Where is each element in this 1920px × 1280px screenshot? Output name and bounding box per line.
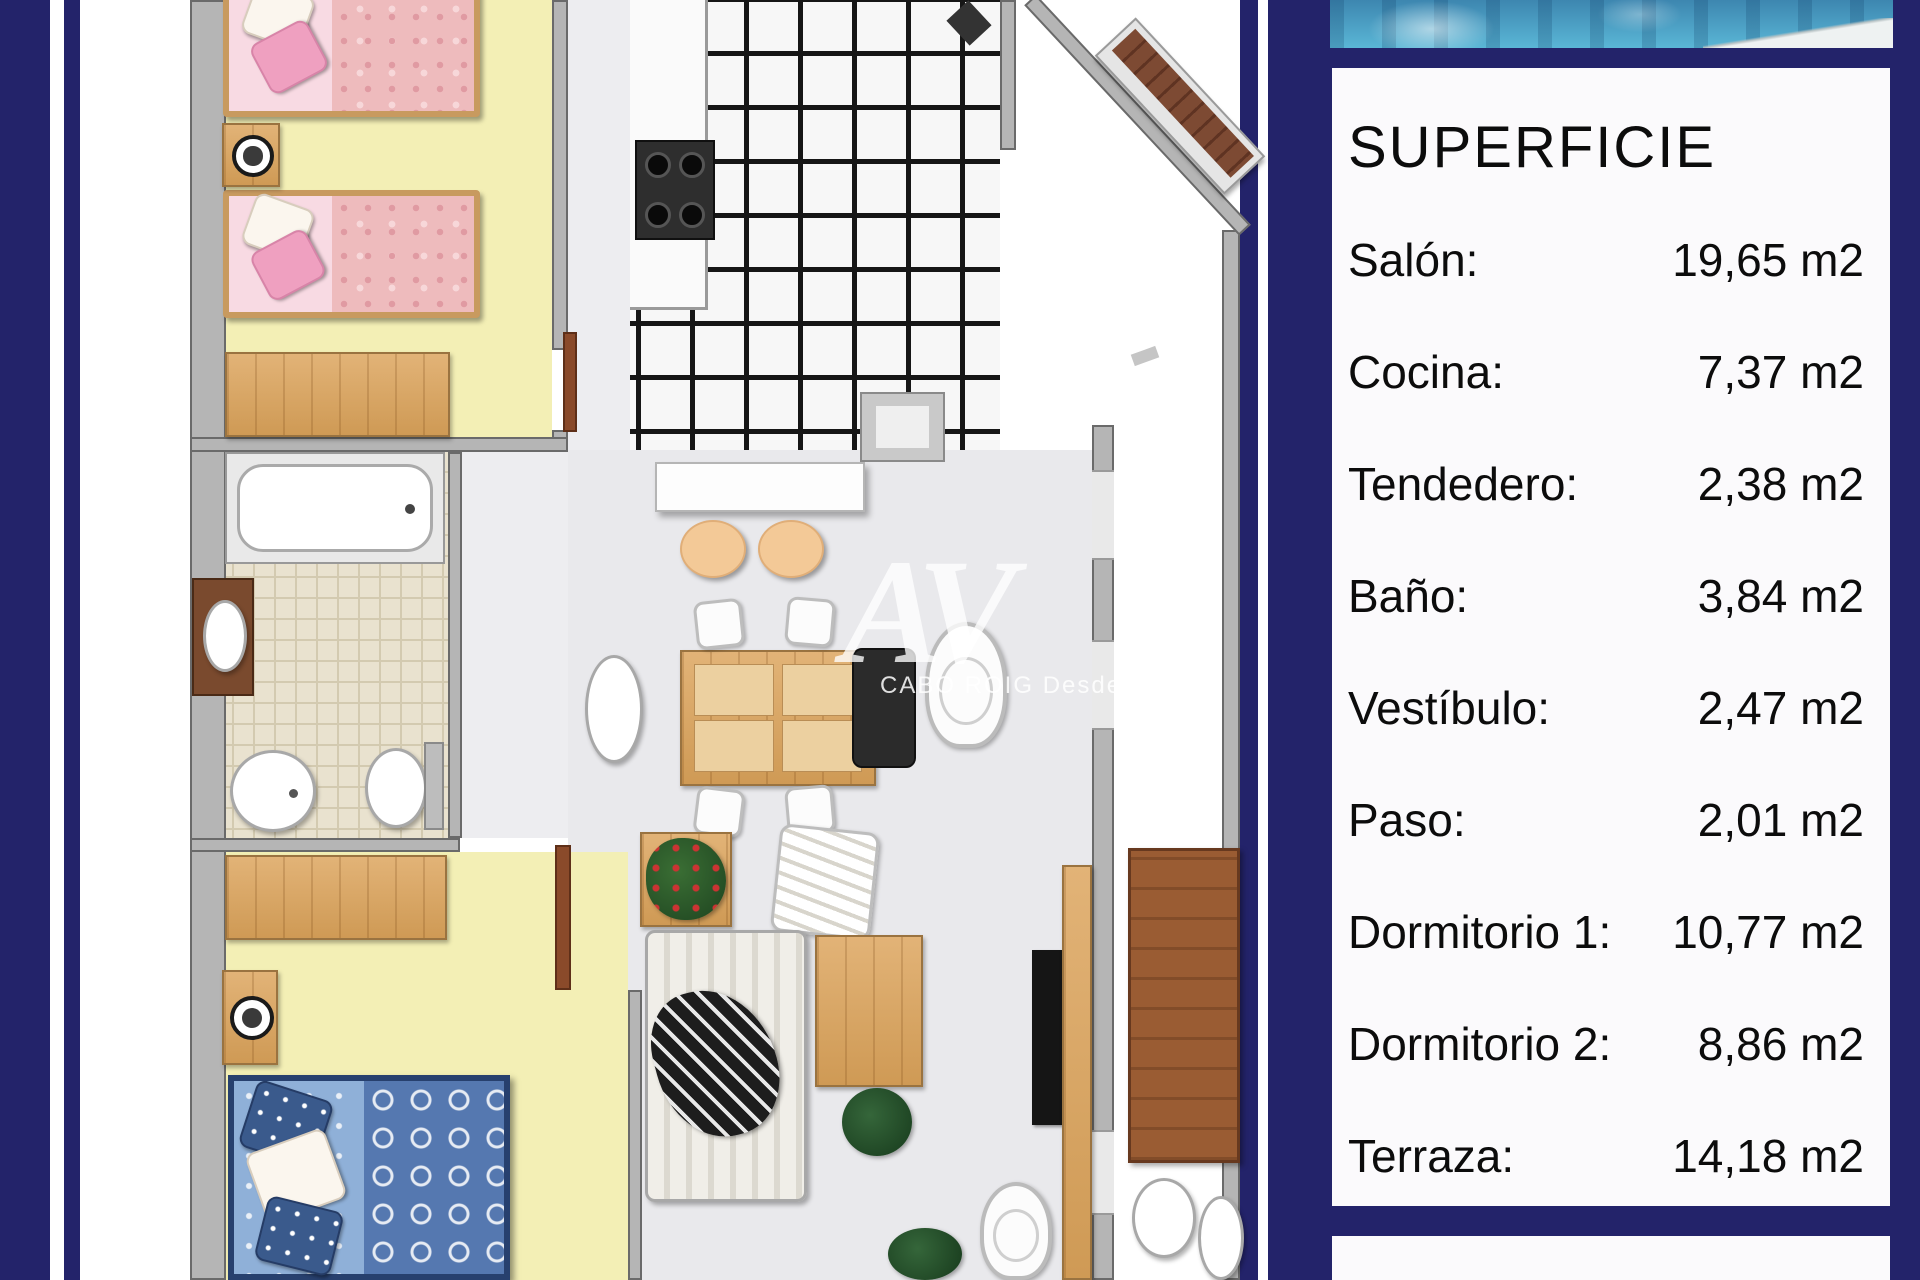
bed1-duvet: [332, 0, 474, 111]
bidet-back: [424, 742, 444, 830]
dining-chair-2: [784, 596, 836, 648]
agency-watermark-caption: CABO ROIG Desde 1970: [880, 672, 1192, 700]
room-value: 14,18 m2: [1672, 1129, 1864, 1183]
coffee-table: [815, 935, 923, 1087]
terrace-window-1: [1092, 470, 1114, 560]
superficie-row: Paso: 2,01 m2: [1348, 764, 1864, 876]
terrace-chair-1: [1132, 1178, 1196, 1258]
nightstand-bedroom1: [222, 123, 280, 187]
bathtub: [225, 452, 445, 564]
left-border-outer: [0, 0, 50, 1280]
room-value: 8,86 m2: [1698, 1017, 1864, 1071]
superficie-row: Tendedero: 2,38 m2: [1348, 428, 1864, 540]
room-value: 3,84 m2: [1698, 569, 1864, 623]
appliance-inset: [876, 406, 929, 448]
room-value: 2,01 m2: [1698, 793, 1864, 847]
wardrobe-bedroom2: [225, 855, 447, 940]
room-value: 2,47 m2: [1698, 681, 1864, 735]
room-label: Dormitorio 1:: [1348, 905, 1611, 959]
superficie-row: Terraza: 14,18 m2: [1348, 1100, 1864, 1212]
vanity-counter: [192, 578, 254, 696]
terrace-table: [1128, 848, 1240, 1163]
sofa: [645, 930, 807, 1202]
bed-blue-pillow-2: [253, 1195, 345, 1278]
nightstand-bedroom2: [222, 970, 278, 1065]
kitchen-right-wall: [1000, 0, 1016, 150]
listing-floorplan-image: AV CABO ROIG Desde 1970 SUPERFICIE Salón…: [0, 0, 1920, 1280]
terrace-chair-2: [1198, 1196, 1244, 1280]
breakfast-bar: [655, 462, 865, 512]
room-value: 10,77 m2: [1672, 905, 1864, 959]
armchair-striped: [770, 823, 881, 941]
vestibule-floor: [568, 0, 630, 450]
tv-cabinet: [1062, 865, 1092, 1280]
bedroom1-right-wall: [552, 0, 568, 350]
room-label: Dormitorio 2:: [1348, 1017, 1611, 1071]
placemat: [694, 720, 774, 772]
floor-plant: [888, 1228, 962, 1280]
toilet-drain: [289, 789, 298, 798]
bedroom2-right-wall: [628, 990, 642, 1280]
bar-stool-2: [758, 520, 824, 578]
divider-strip: [1240, 0, 1258, 1280]
bar-stool-1: [680, 520, 746, 578]
room-value: 19,65 m2: [1672, 233, 1864, 287]
room-value: 2,38 m2: [1698, 457, 1864, 511]
kitchen-appliance: [860, 392, 945, 462]
person-on-sofa: [639, 975, 794, 1151]
flower-plant: [646, 838, 726, 920]
bottom-panel: [1332, 1236, 1890, 1280]
placemat: [694, 664, 774, 716]
floor-plan: AV CABO ROIG Desde 1970: [80, 0, 1240, 1280]
terrace-window-3: [1092, 1130, 1114, 1215]
pool-photo: [1330, 0, 1893, 48]
double-bed-duvet: [364, 1081, 504, 1274]
superficie-row: Dormitorio 2: 8,86 m2: [1348, 988, 1864, 1100]
round-plant: [842, 1088, 912, 1156]
room-label: Tendedero:: [1348, 457, 1578, 511]
lamp-bedroom2: [230, 996, 274, 1040]
superficie-row: Salón: 19,65 m2: [1348, 204, 1864, 316]
bedroom1-bath-wall: [190, 437, 568, 452]
superficie-panel: SUPERFICIE Salón: 19,65 m2 Cocina: 7,37 …: [1332, 68, 1890, 1206]
room-label: Salón:: [1348, 233, 1478, 287]
sink: [203, 600, 247, 672]
tv-screen: [1032, 950, 1062, 1125]
superficie-row: Dormitorio 1: 10,77 m2: [1348, 876, 1864, 988]
superficie-row: Cocina: 7,37 m2: [1348, 316, 1864, 428]
hall-console-oval: [585, 655, 643, 763]
room-label: Cocina:: [1348, 345, 1504, 399]
dining-chair-1: [693, 598, 746, 651]
room-label: Vestíbulo:: [1348, 681, 1550, 735]
room-label: Baño:: [1348, 569, 1468, 623]
wardrobe-bedroom1: [225, 352, 450, 437]
superficie-row: Vestíbulo: 2,47 m2: [1348, 652, 1864, 764]
stove: [635, 140, 715, 240]
superficie-rows: Salón: 19,65 m2 Cocina: 7,37 m2 Tendeder…: [1348, 204, 1864, 1212]
left-border-inner: [64, 0, 80, 1280]
bedroom2-door: [555, 845, 571, 990]
bath-paso-wall: [448, 452, 462, 838]
pool-edge: [1703, 18, 1893, 48]
bidet: [365, 748, 427, 828]
superficie-row: Baño: 3,84 m2: [1348, 540, 1864, 652]
agency-watermark-logo: AV: [842, 552, 1003, 672]
room-label: Paso:: [1348, 793, 1466, 847]
single-bed-1: [223, 0, 480, 117]
toilet: [230, 750, 316, 832]
placemat: [782, 720, 862, 772]
room-label: Terraza:: [1348, 1129, 1514, 1183]
paso-floor: [448, 452, 568, 838]
single-bed-2: [223, 190, 480, 318]
superficie-title: SUPERFICIE: [1348, 114, 1716, 181]
bath-bedroom2-wall: [190, 838, 460, 852]
room-value: 7,37 m2: [1698, 345, 1864, 399]
bedroom1-door: [563, 332, 577, 432]
bed2-duvet: [332, 196, 474, 312]
dining-chair-3: [692, 785, 745, 838]
double-bed: [228, 1075, 510, 1280]
small-chair-bottom: [980, 1182, 1052, 1280]
terrace-mark: [1131, 346, 1160, 366]
lamp-bedroom1: [232, 135, 274, 177]
